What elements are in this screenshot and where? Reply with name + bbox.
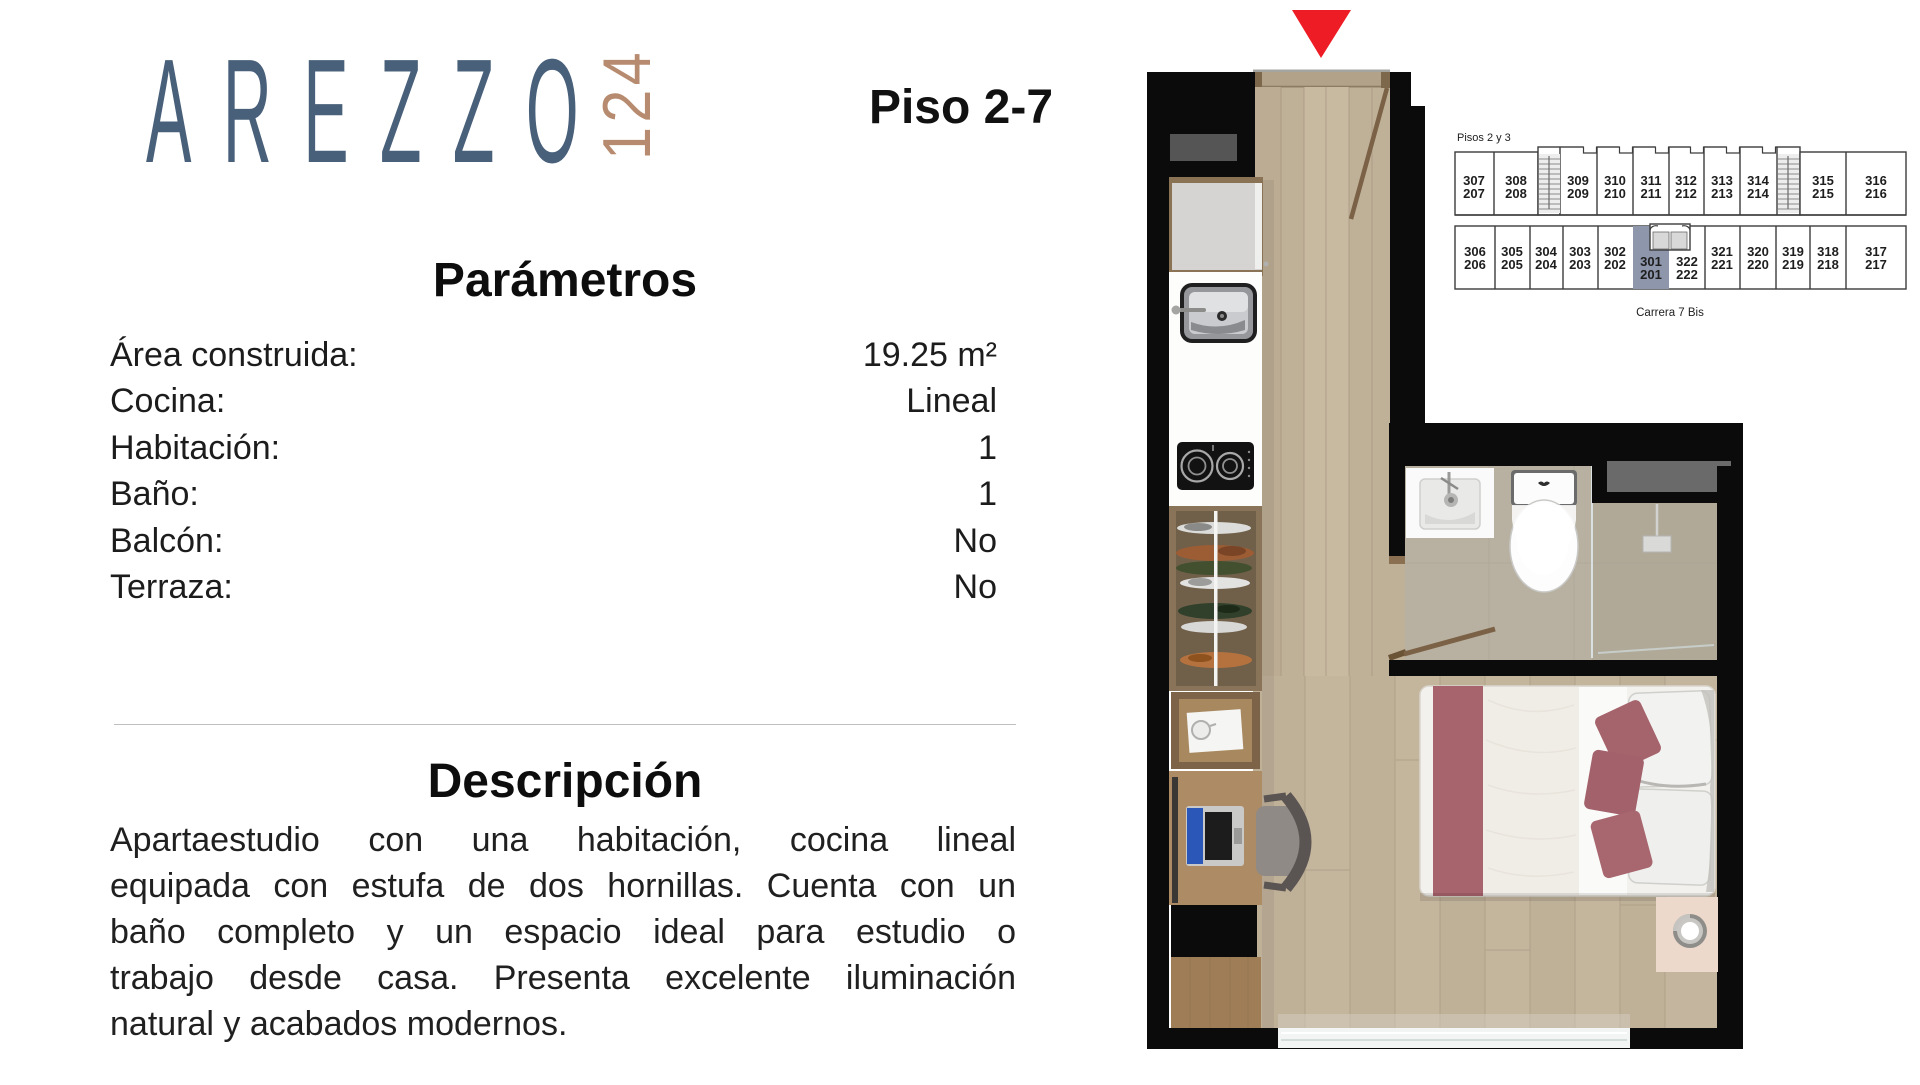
svg-text:215: 215 [1812, 186, 1834, 201]
svg-text:206: 206 [1464, 257, 1486, 272]
svg-text:212: 212 [1675, 186, 1697, 201]
svg-text:221: 221 [1711, 257, 1733, 272]
svg-text:Pisos 2 y 3: Pisos 2 y 3 [1457, 132, 1511, 144]
svg-text:201: 201 [1640, 267, 1662, 282]
svg-text:219: 219 [1782, 257, 1804, 272]
svg-text:202: 202 [1604, 257, 1626, 272]
svg-text:213: 213 [1711, 186, 1733, 201]
svg-text:216: 216 [1865, 186, 1887, 201]
svg-text:214: 214 [1747, 186, 1769, 201]
svg-text:220: 220 [1747, 257, 1769, 272]
svg-text:205: 205 [1501, 257, 1523, 272]
svg-text:AREZZO: AREZZO [146, 40, 610, 180]
svg-text:Carrera 7 Bis: Carrera 7 Bis [1636, 307, 1704, 319]
svg-text:209: 209 [1567, 186, 1589, 201]
svg-text:208: 208 [1505, 186, 1527, 201]
svg-text:217: 217 [1865, 257, 1887, 272]
svg-text:124: 124 [589, 48, 665, 160]
svg-text:211: 211 [1641, 186, 1662, 201]
svg-text:218: 218 [1817, 257, 1839, 272]
svg-text:204: 204 [1535, 257, 1557, 272]
svg-text:207: 207 [1463, 186, 1485, 201]
svg-text:203: 203 [1569, 257, 1591, 272]
svg-text:222: 222 [1676, 267, 1698, 282]
svg-text:210: 210 [1604, 186, 1626, 201]
